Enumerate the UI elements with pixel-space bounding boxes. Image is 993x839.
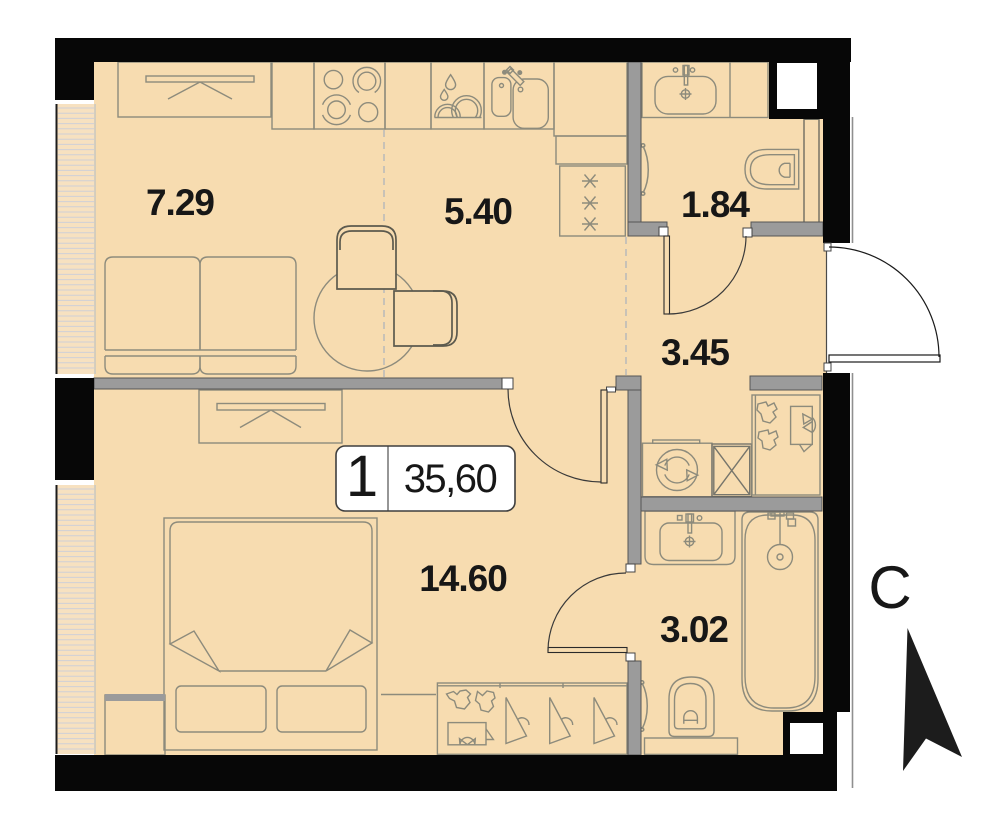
svg-text:3.45: 3.45 <box>661 332 729 373</box>
svg-text:7.29: 7.29 <box>146 182 214 223</box>
svg-text:1.84: 1.84 <box>681 184 750 225</box>
svg-text:14.60: 14.60 <box>419 558 507 599</box>
svg-text:5.40: 5.40 <box>444 191 512 232</box>
svg-text:35,60: 35,60 <box>404 457 497 501</box>
svg-text:1: 1 <box>346 444 378 509</box>
svg-text:С: С <box>868 554 911 621</box>
svg-text:3.02: 3.02 <box>660 609 728 650</box>
